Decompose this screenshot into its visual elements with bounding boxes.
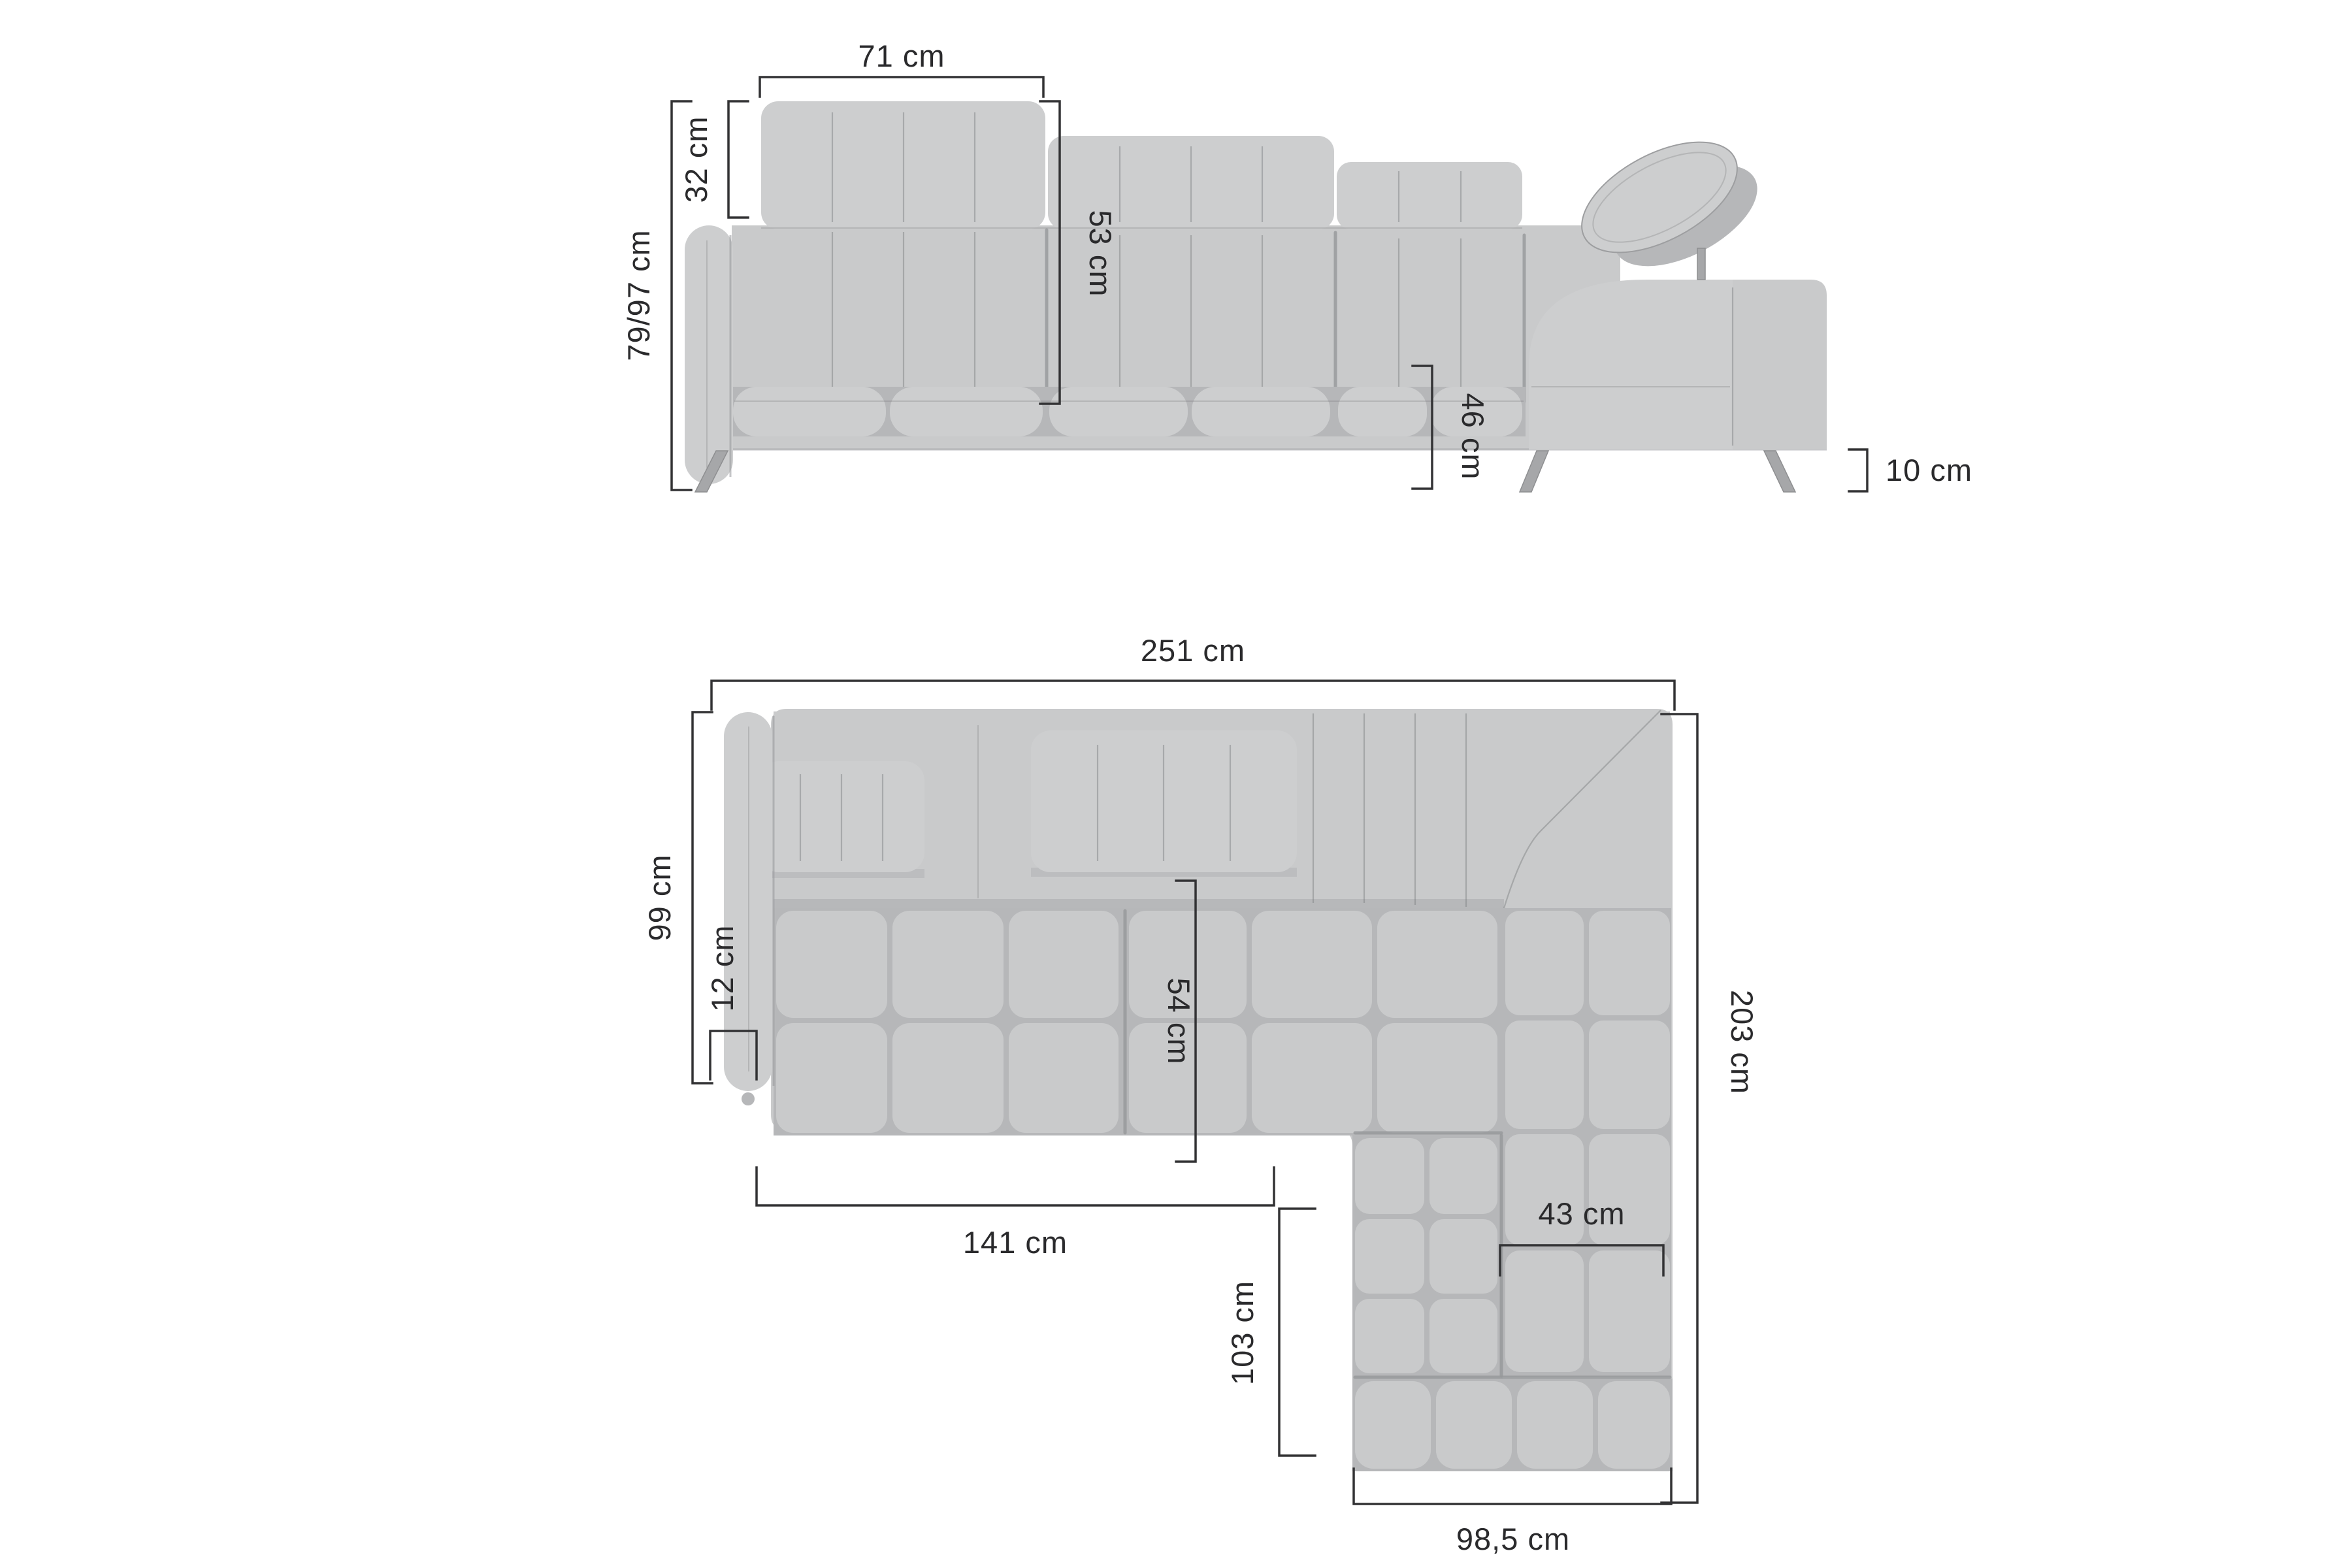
backrest-front-shadow [774, 899, 1504, 909]
front-elevation-view: 71 cm 32 cm 79/97 cm 53 cm 46 cm 10 cm [621, 39, 1972, 492]
front-leg-middle [1520, 451, 1548, 492]
headrest-hinge [1697, 248, 1705, 280]
dim-label-chaise-length: 103 cm [1225, 1281, 1260, 1385]
dim-total-depth: 203 cm [1661, 714, 1759, 1503]
dim-label-total-depth: 203 cm [1725, 990, 1759, 1094]
dim-label-side-depth: 99 cm [642, 855, 677, 941]
dim-label-chaise-width: 98,5 cm [1456, 1522, 1570, 1556]
dim-chaise-length: 103 cm [1225, 1209, 1315, 1456]
dim-label-total-width: 251 cm [1141, 633, 1245, 668]
dim-headrest-height: 32 cm [679, 101, 748, 218]
dim-label-headrest-width: 71 cm [858, 39, 945, 73]
sofa-legs-front [695, 451, 1795, 492]
diagram-canvas: 71 cm 32 cm 79/97 cm 53 cm 46 cm 10 cm [0, 0, 2352, 1568]
dim-total-width: 251 cm [711, 633, 1674, 710]
dim-label-corner-backrest-width: 43 cm [1539, 1196, 1625, 1231]
dim-headrest-width: 71 cm [760, 39, 1043, 97]
dim-label-total-height: 79/97 cm [621, 229, 656, 361]
front-leg-right [1764, 451, 1795, 492]
armrest-plan [724, 712, 774, 1105]
dim-side-depth: 99 cm [642, 712, 712, 1083]
dim-label-headrest-height: 32 cm [679, 116, 713, 203]
dim-label-seat-height: 46 cm [1456, 393, 1490, 480]
sofa-dimension-drawing: 71 cm 32 cm 79/97 cm 53 cm 46 cm 10 cm [0, 0, 2352, 1568]
dim-label-seat-front-width: 141 cm [963, 1225, 1068, 1260]
top-plan-view: 251 cm 99 cm 12 cm 54 cm 141 cm 103 cm 2… [642, 633, 1759, 1556]
armrest-front [685, 225, 733, 484]
dim-label-seat-depth: 54 cm [1162, 978, 1196, 1065]
dim-chaise-width: 98,5 cm [1354, 1469, 1671, 1556]
dim-label-backrest-height: 53 cm [1083, 210, 1118, 297]
dim-seat-front-width: 141 cm [757, 1168, 1274, 1260]
chaise-arm-panel [1733, 280, 1827, 449]
headrest-pillow-left-plan [759, 761, 924, 878]
headrest-right [1337, 162, 1522, 229]
seat-cushions-front [733, 387, 1522, 436]
dim-leg-height: 10 cm [1849, 449, 1972, 491]
headrest-pillow-middle-plan [1031, 730, 1297, 877]
backrest-front [732, 225, 1620, 405]
corner-section-front [1529, 280, 1827, 449]
dim-label-leg-height: 10 cm [1886, 453, 1972, 487]
dim-label-armrest-width: 12 cm [705, 925, 740, 1012]
